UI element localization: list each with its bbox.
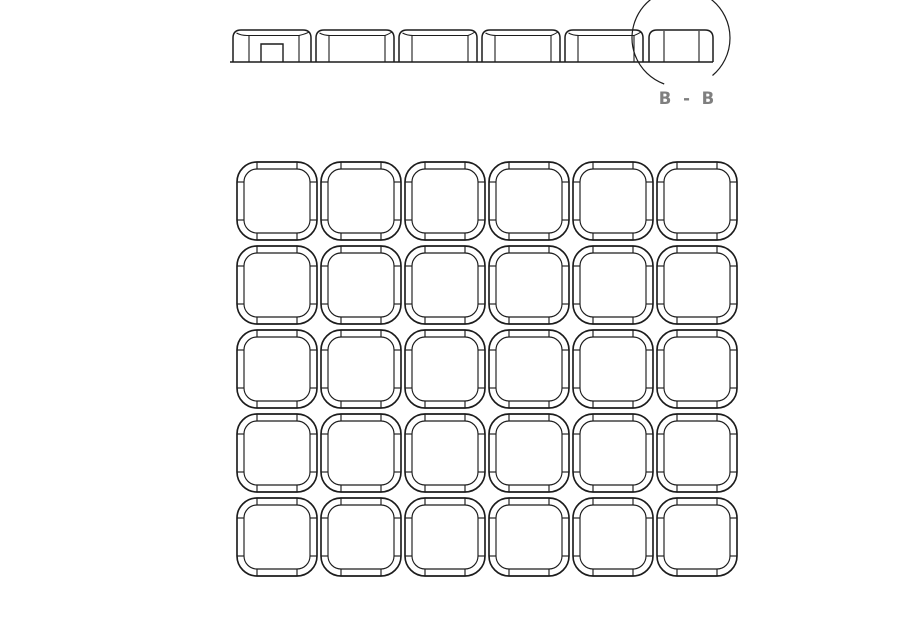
tile-inner-contour: [412, 337, 478, 401]
tile-inner-contour: [664, 253, 730, 317]
grid-tile: [405, 414, 485, 492]
tile-outer-contour: [657, 330, 737, 408]
profile-inner-top-edge: [320, 32, 392, 36]
tile-inner-contour: [580, 505, 646, 569]
drawing-sheet: B - B: [0, 0, 900, 627]
tile-inner-contour: [580, 337, 646, 401]
section-profile: [399, 30, 477, 62]
section-profile: [649, 30, 713, 62]
technical-drawing: B - B: [0, 0, 900, 627]
tile-inner-contour: [664, 169, 730, 233]
tile-inner-contour: [412, 505, 478, 569]
grid-tile: [321, 498, 401, 576]
tile-outer-contour: [405, 498, 485, 576]
tile-inner-contour: [580, 253, 646, 317]
profile-outline: [482, 30, 560, 62]
tile-inner-contour: [664, 505, 730, 569]
section-view-b-b: [230, 0, 730, 84]
tile-outer-contour: [657, 498, 737, 576]
tile-inner-contour: [412, 169, 478, 233]
tile-outer-contour: [237, 330, 317, 408]
tile-inner-contour: [496, 253, 562, 317]
tile-outer-contour: [405, 162, 485, 240]
tile-inner-contour: [328, 337, 394, 401]
tile-outer-contour: [321, 246, 401, 324]
grid-tile: [657, 330, 737, 408]
section-profile: [565, 30, 643, 62]
tile-outer-contour: [321, 414, 401, 492]
profile-outline: [649, 30, 713, 62]
grid-tile: [237, 414, 317, 492]
grid-tile: [237, 498, 317, 576]
tile-inner-contour: [496, 169, 562, 233]
section-label: B - B: [659, 89, 718, 108]
tile-inner-contour: [328, 253, 394, 317]
grid-tile: [237, 162, 317, 240]
detail-circle: [632, 0, 730, 84]
tile-outer-contour: [405, 246, 485, 324]
grid-tile: [321, 330, 401, 408]
tile-inner-contour: [328, 505, 394, 569]
tile-outer-contour: [573, 414, 653, 492]
tile-inner-contour: [664, 337, 730, 401]
grid-tile: [657, 414, 737, 492]
grid-tile: [405, 330, 485, 408]
tile-outer-contour: [489, 498, 569, 576]
grid-tile: [573, 414, 653, 492]
profile-inner-top-edge: [486, 32, 558, 36]
grid-tile: [237, 330, 317, 408]
grid-tile: [573, 246, 653, 324]
plan-view-grid: [237, 162, 737, 576]
tile-outer-contour: [237, 414, 317, 492]
section-profile: [482, 30, 560, 62]
grid-tile: [321, 414, 401, 492]
grid-tile: [405, 162, 485, 240]
tile-outer-contour: [489, 330, 569, 408]
grid-tile: [405, 498, 485, 576]
tile-inner-contour: [244, 421, 310, 485]
tile-inner-contour: [328, 421, 394, 485]
section-profile: [233, 30, 311, 62]
profile-inner-top-edge: [569, 32, 641, 36]
grid-tile: [573, 330, 653, 408]
tile-inner-contour: [412, 253, 478, 317]
profile-outline: [316, 30, 394, 62]
tile-inner-contour: [328, 169, 394, 233]
tile-outer-contour: [657, 414, 737, 492]
grid-tile: [657, 246, 737, 324]
profile-notch: [261, 44, 283, 62]
profile-inner-top-edge: [403, 32, 475, 36]
tile-inner-contour: [580, 421, 646, 485]
tile-outer-contour: [573, 498, 653, 576]
grid-tile: [657, 162, 737, 240]
grid-tile: [489, 162, 569, 240]
tile-outer-contour: [237, 246, 317, 324]
grid-tile: [321, 246, 401, 324]
tile-outer-contour: [573, 162, 653, 240]
tile-outer-contour: [489, 414, 569, 492]
tile-outer-contour: [321, 162, 401, 240]
tile-inner-contour: [412, 421, 478, 485]
tile-outer-contour: [657, 246, 737, 324]
grid-tile: [489, 498, 569, 576]
tile-inner-contour: [244, 337, 310, 401]
grid-tile: [489, 246, 569, 324]
tile-inner-contour: [244, 253, 310, 317]
tile-outer-contour: [573, 246, 653, 324]
tile-inner-contour: [496, 421, 562, 485]
tile-inner-contour: [496, 337, 562, 401]
tile-inner-contour: [496, 505, 562, 569]
grid-tile: [489, 330, 569, 408]
tile-outer-contour: [573, 330, 653, 408]
grid-tile: [321, 162, 401, 240]
tile-outer-contour: [237, 498, 317, 576]
grid-tile: [657, 498, 737, 576]
profile-inner-top-edge: [237, 32, 309, 36]
grid-tile: [237, 246, 317, 324]
tile-outer-contour: [489, 162, 569, 240]
tile-inner-contour: [244, 505, 310, 569]
profile-outline: [399, 30, 477, 62]
profile-outline: [565, 30, 643, 62]
grid-tile: [573, 498, 653, 576]
tile-inner-contour: [664, 421, 730, 485]
tile-outer-contour: [657, 162, 737, 240]
tile-outer-contour: [405, 330, 485, 408]
tile-outer-contour: [321, 498, 401, 576]
tile-outer-contour: [237, 162, 317, 240]
tile-outer-contour: [489, 246, 569, 324]
section-profile: [316, 30, 394, 62]
grid-tile: [405, 246, 485, 324]
grid-tile: [573, 162, 653, 240]
tile-inner-contour: [580, 169, 646, 233]
tile-inner-contour: [244, 169, 310, 233]
tile-outer-contour: [405, 414, 485, 492]
tile-outer-contour: [321, 330, 401, 408]
grid-tile: [489, 414, 569, 492]
